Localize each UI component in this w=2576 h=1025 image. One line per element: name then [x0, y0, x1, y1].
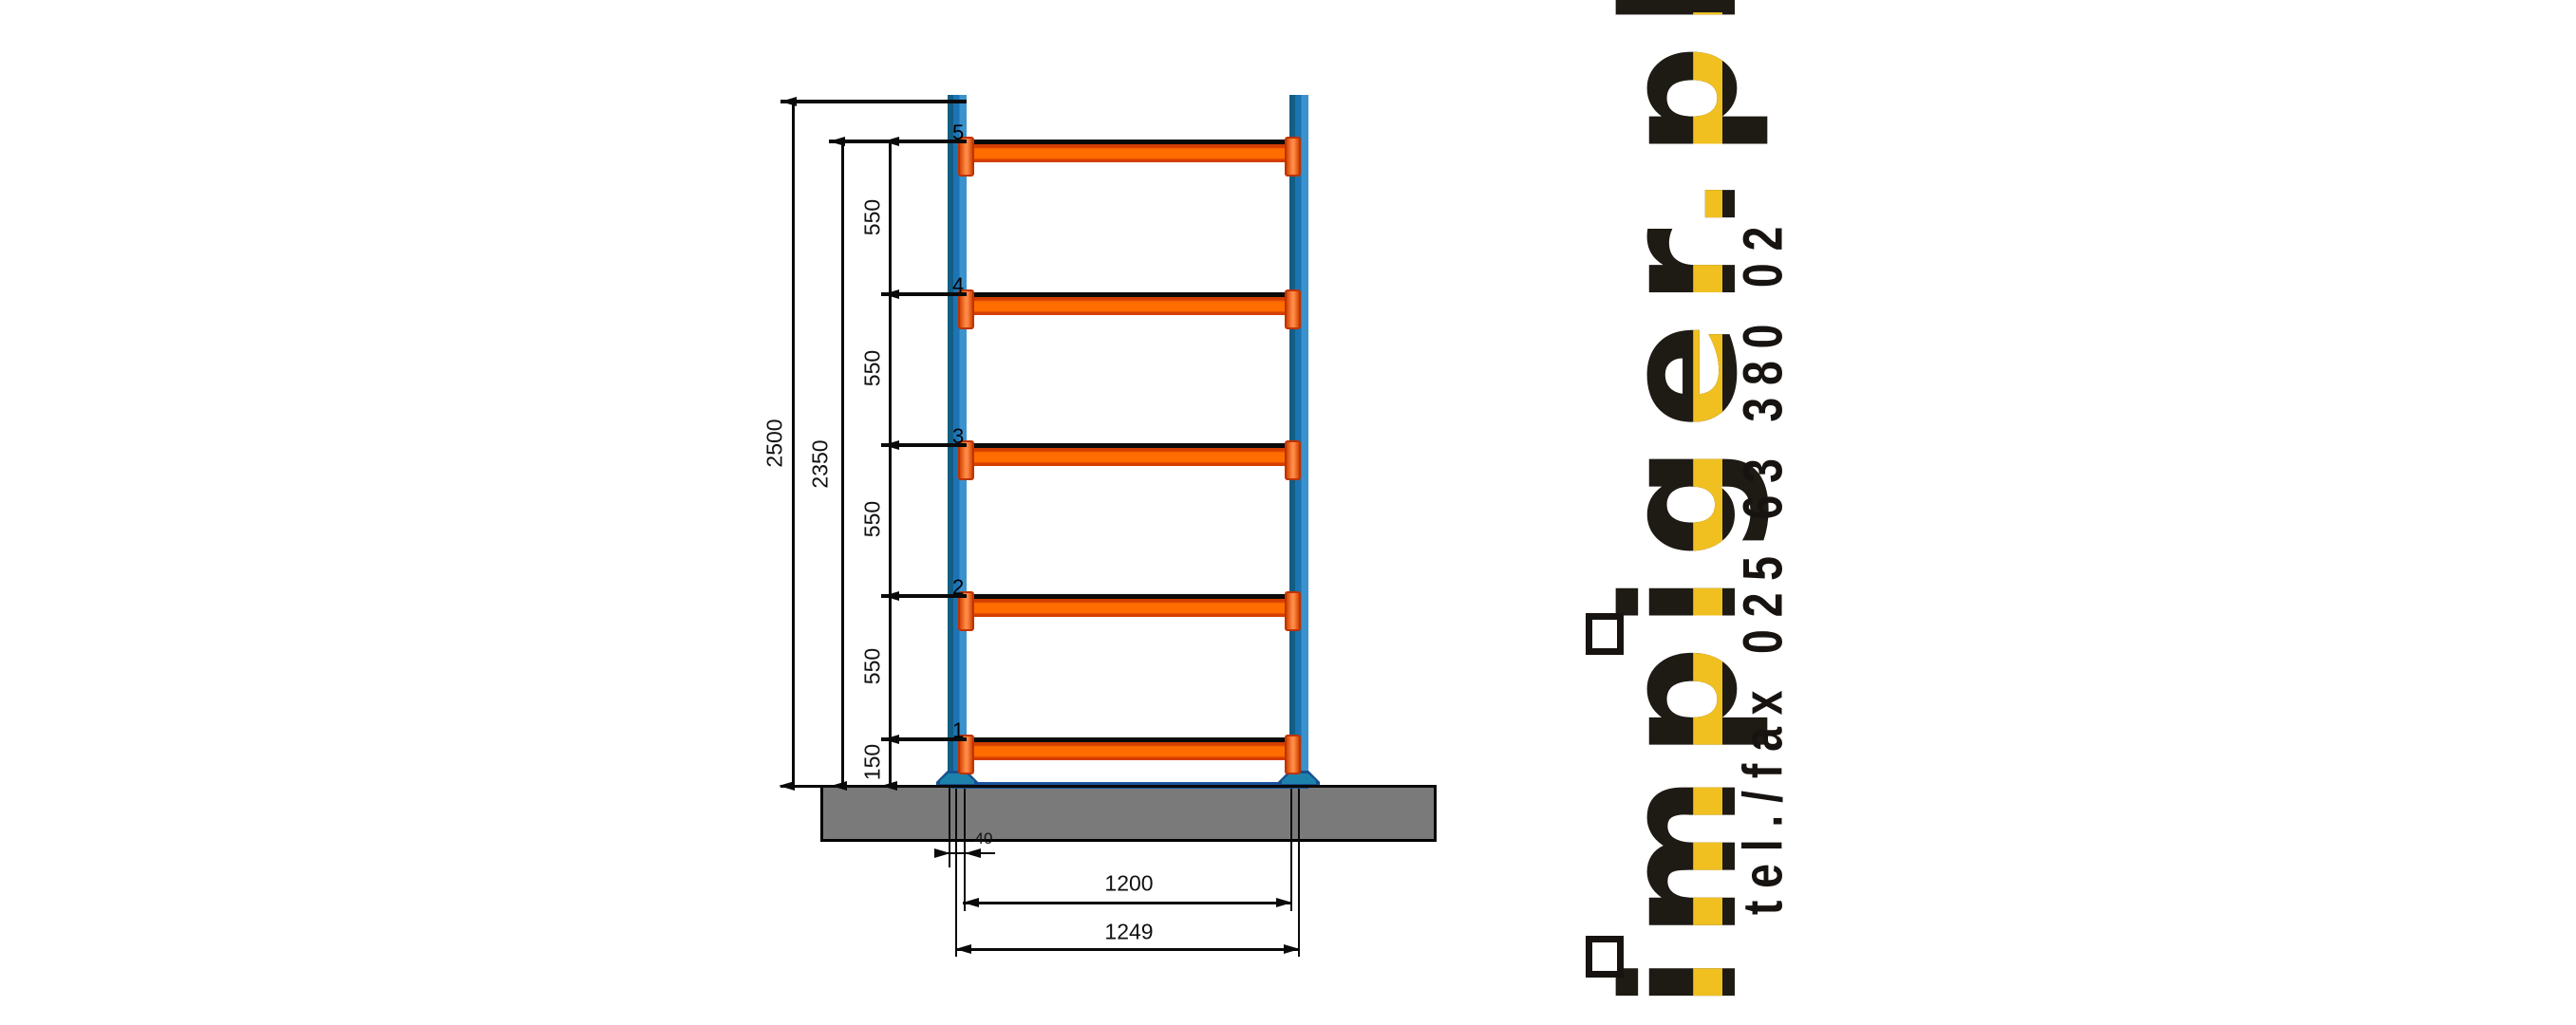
dim-arrow	[779, 781, 795, 791]
dim-arrow	[1284, 944, 1300, 954]
dim-text-spacing-3: 550	[860, 501, 886, 537]
beam-level-1	[966, 737, 1289, 760]
dim-text-first-level: 150	[860, 744, 886, 780]
extension-line-1249-left	[955, 788, 957, 957]
floor-line	[780, 785, 1437, 788]
beam-connector-right	[1285, 591, 1301, 631]
dim-text-post-width: 40	[975, 829, 993, 848]
beam-body	[966, 448, 1289, 466]
dim-arrow	[963, 898, 979, 907]
dim-line-2500	[792, 101, 795, 787]
logo-i-dot-square-lower	[1586, 936, 1624, 978]
dim-arrow	[934, 848, 950, 858]
beam-body	[966, 742, 1289, 760]
dim-chain-line	[889, 140, 892, 787]
beam-connector-right	[1285, 289, 1301, 329]
rack-drawing-canvas: 5 4 3 2 1 2500 2350 550 550 550 550 150 …	[0, 0, 2576, 1025]
dim-arrow	[883, 289, 899, 299]
dim-arrow	[829, 137, 845, 146]
extension-line-1200-right	[1290, 784, 1292, 911]
dim-arrow	[965, 848, 981, 858]
dim-arrow	[780, 97, 797, 106]
concrete-slab	[820, 788, 1437, 842]
extension-line-top	[780, 100, 967, 103]
beam-level-3	[966, 443, 1289, 466]
dim-text-to-top-beam: 2350	[808, 439, 834, 488]
beam-connector-right	[1285, 735, 1301, 774]
beam-connector-right	[1285, 137, 1301, 177]
dim-line-1200	[963, 902, 1292, 904]
dim-text-spacing-2: 550	[860, 350, 886, 386]
logo-i-dot-square-upper	[1586, 613, 1624, 655]
dim-arrow	[955, 944, 971, 954]
dim-arrow	[883, 440, 899, 450]
beam-connector-right	[1285, 440, 1301, 480]
dim-line-1249	[955, 948, 1300, 951]
dim-arrow	[883, 591, 899, 601]
dim-text-overall-width: 1249	[1104, 920, 1153, 945]
dim-text-spacing-1: 550	[860, 199, 886, 235]
dim-text-beam-span: 1200	[1104, 871, 1153, 897]
beam-body	[966, 599, 1289, 617]
dim-arrow	[883, 137, 899, 146]
extension-line-1249-right	[1298, 784, 1300, 957]
dim-text-total-height: 2500	[762, 419, 788, 467]
beam-body	[966, 144, 1289, 162]
beam-level-2	[966, 594, 1289, 617]
beam-body	[966, 297, 1289, 315]
phone-number: tel./fax 025 63 380 02	[1732, 214, 1796, 915]
beam-level-5	[966, 140, 1289, 162]
dim-arrow	[883, 735, 899, 744]
dim-text-spacing-4: 550	[860, 648, 886, 684]
beam-level-4	[966, 292, 1289, 315]
dim-arrow	[881, 781, 897, 791]
dim-line-2350	[841, 140, 844, 787]
dim-arrow	[831, 781, 847, 791]
dim-arrow	[1276, 898, 1292, 907]
